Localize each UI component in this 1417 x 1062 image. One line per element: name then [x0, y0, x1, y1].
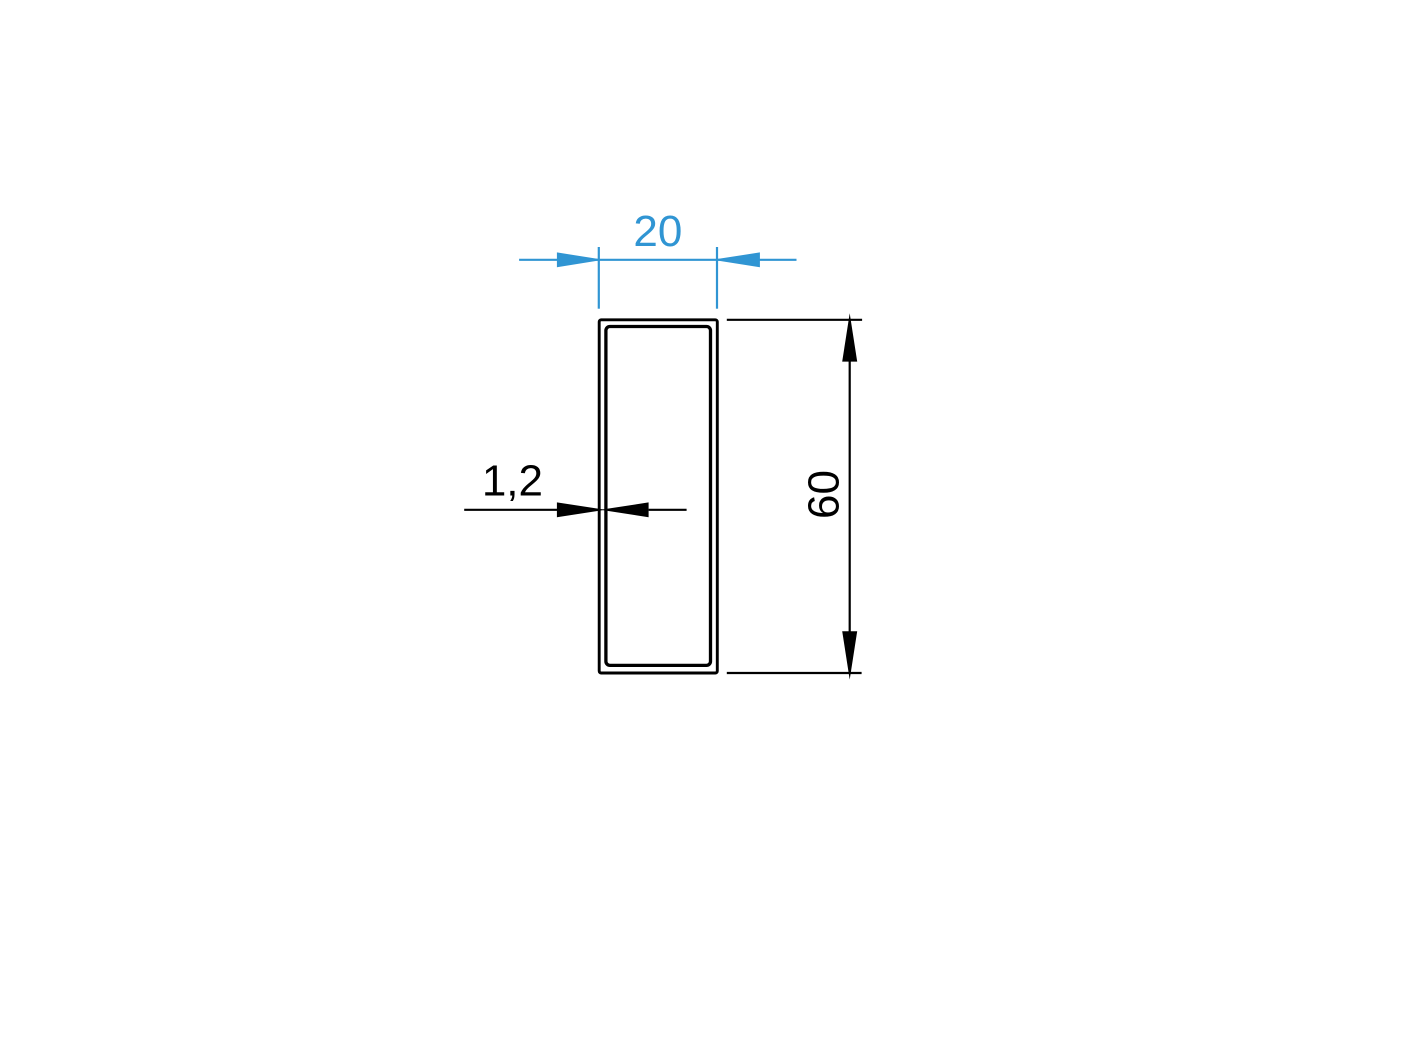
svg-text:20: 20 [633, 207, 682, 256]
svg-text:60: 60 [800, 470, 849, 519]
svg-text:1,2: 1,2 [482, 457, 543, 506]
